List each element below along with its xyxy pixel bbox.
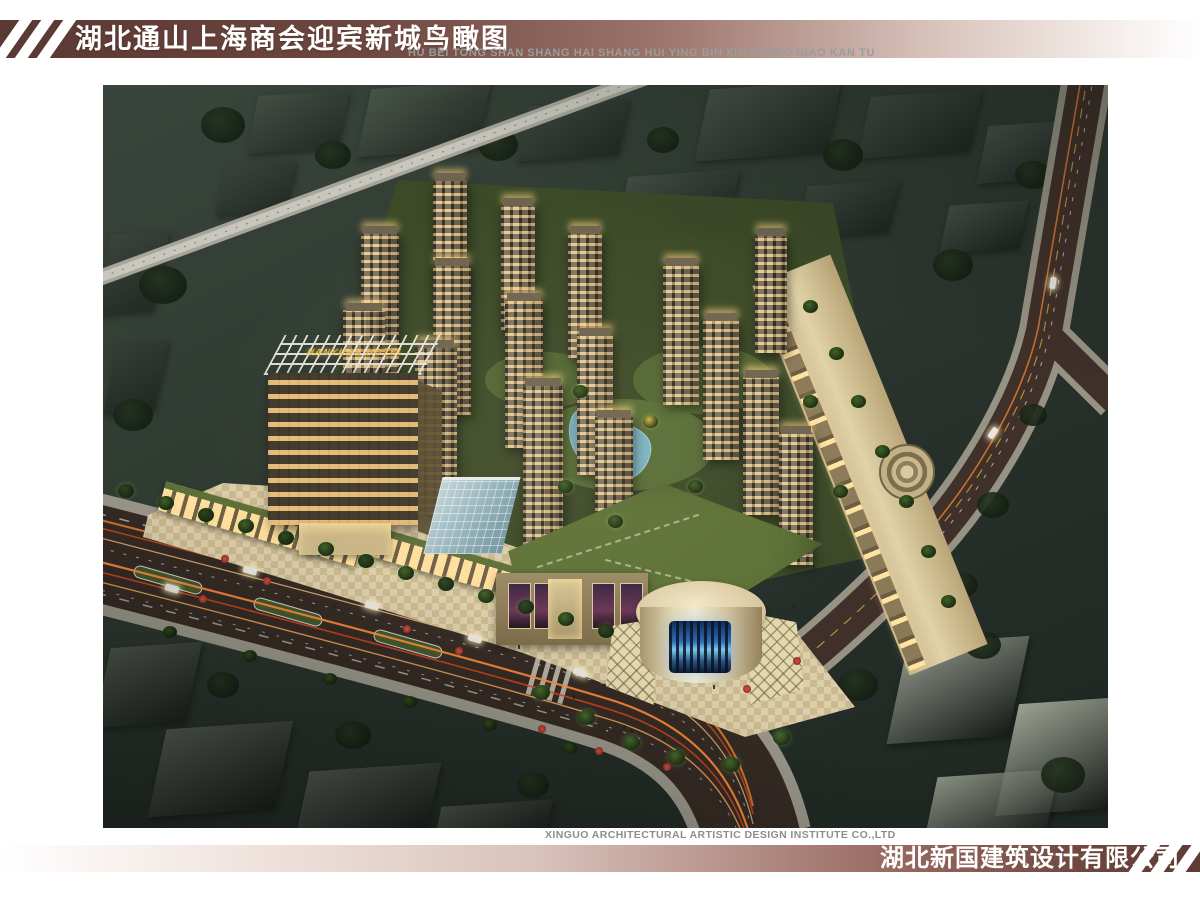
street-tree bbox=[478, 589, 494, 603]
cafe-umbrella bbox=[199, 595, 207, 603]
plaza-tree bbox=[533, 685, 550, 700]
street-tree bbox=[158, 496, 174, 510]
pedestrian bbox=[713, 685, 715, 689]
site-tree bbox=[833, 485, 848, 498]
pedestrian bbox=[333, 605, 335, 609]
site-tree bbox=[851, 395, 866, 408]
cafe-umbrella bbox=[793, 657, 801, 665]
street-tree bbox=[198, 508, 214, 522]
led-screen bbox=[669, 621, 731, 673]
plaza-tree bbox=[623, 735, 640, 750]
plaza-tree bbox=[723, 757, 740, 772]
site-tree bbox=[573, 385, 588, 398]
context-building bbox=[148, 721, 294, 818]
hotel-entrance bbox=[299, 523, 391, 555]
site-tree bbox=[643, 415, 658, 428]
designer-name-cn: 湖北新国建筑设计有限公司 bbox=[880, 845, 1180, 872]
street-tree bbox=[598, 624, 614, 638]
cafe-umbrella bbox=[403, 625, 411, 633]
context-tree bbox=[1041, 757, 1085, 792]
aerial-rendering: HANYUAN HOTEL bbox=[103, 85, 1108, 828]
context-building bbox=[295, 762, 442, 828]
street-tree bbox=[278, 531, 294, 545]
site-tree bbox=[803, 395, 818, 408]
context-tree bbox=[1019, 404, 1047, 426]
pedestrian bbox=[813, 565, 815, 569]
cafe-umbrella bbox=[263, 577, 271, 585]
mall-entrance bbox=[548, 579, 582, 639]
pedestrian bbox=[701, 733, 703, 737]
pedestrian bbox=[793, 605, 795, 609]
cafe-umbrella bbox=[538, 725, 546, 733]
site-tree bbox=[558, 480, 573, 493]
street-tree bbox=[323, 673, 337, 685]
street-tree bbox=[358, 554, 374, 568]
site-tree bbox=[941, 595, 956, 608]
residential-tower bbox=[743, 377, 779, 515]
context-tree bbox=[335, 721, 371, 750]
site-tree bbox=[608, 515, 623, 528]
context-tree bbox=[977, 492, 1009, 518]
site-tree bbox=[803, 300, 818, 313]
street-tree bbox=[403, 696, 417, 708]
cafe-umbrella bbox=[663, 763, 671, 771]
presentation-board: { "header": { "title": "湖北通山上海商会迎宾新城鸟瞰图"… bbox=[0, 0, 1200, 900]
pedestrian bbox=[623, 725, 625, 729]
street-tree bbox=[243, 650, 257, 662]
pedestrian bbox=[663, 737, 665, 741]
pedestrian bbox=[573, 695, 575, 699]
context-tree bbox=[517, 772, 549, 798]
cafe-umbrella bbox=[455, 647, 463, 655]
board-title-pinyin: HU BEI TONG SHAN SHANG HAI SHANG HUI YIN… bbox=[408, 47, 875, 59]
plaza-tree bbox=[773, 730, 790, 745]
plaza-tree bbox=[668, 750, 685, 765]
street-tree bbox=[398, 566, 414, 580]
site-tree bbox=[688, 480, 703, 493]
site-tree bbox=[829, 347, 844, 360]
context-building bbox=[923, 769, 1060, 828]
plaza-tree bbox=[578, 710, 595, 725]
site-tree bbox=[921, 545, 936, 558]
hotel-tower bbox=[268, 373, 418, 525]
pedestrian bbox=[518, 645, 520, 649]
residential-tower bbox=[755, 235, 787, 353]
hotel-sign: HANYUAN HOTEL bbox=[279, 347, 434, 357]
street-tree bbox=[558, 612, 574, 626]
fashion-billboard bbox=[592, 583, 615, 629]
cafe-umbrella bbox=[221, 555, 229, 563]
context-tree bbox=[207, 672, 239, 698]
site-tree bbox=[899, 495, 914, 508]
residential-tower bbox=[663, 265, 699, 405]
site-tree bbox=[875, 445, 890, 458]
designer-name-en: XINGUO ARCHITECTURAL ARTISTIC DESIGN INS… bbox=[545, 829, 896, 841]
residential-tower bbox=[703, 320, 739, 460]
cafe-umbrella bbox=[743, 685, 751, 693]
pedestrian bbox=[631, 729, 633, 733]
cafe-umbrella bbox=[595, 747, 603, 755]
residential-tower bbox=[523, 385, 563, 545]
